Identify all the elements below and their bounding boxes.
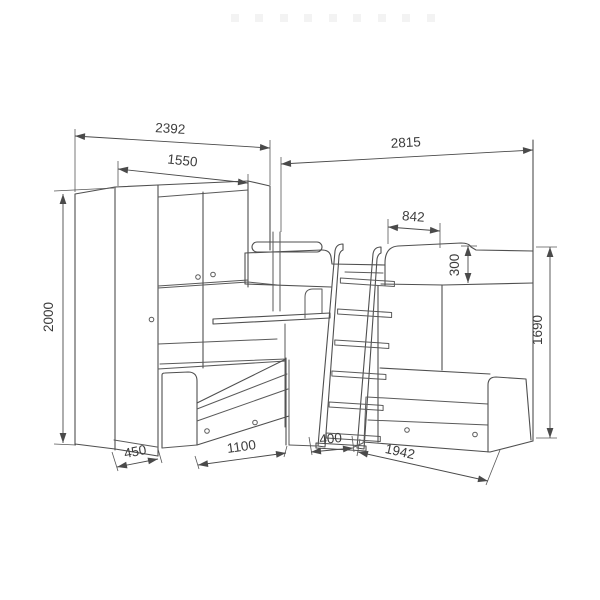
right-bed-drawer-handle-1 — [405, 428, 410, 433]
dimension-labels: 2392 1550 2815 842 300 2000 1690 450 110… — [41, 120, 545, 462]
left-bed-drawer-handle-1 — [205, 429, 210, 434]
ladder — [316, 244, 394, 451]
dimension-lines — [63, 136, 550, 481]
dim-label-wardrobe-depth: 450 — [123, 442, 148, 461]
dim-label-upper-bed-height: 1690 — [530, 315, 545, 345]
watermark-dots — [231, 14, 435, 22]
wardrobe — [75, 185, 158, 456]
overhead-cabinet — [158, 181, 286, 369]
wardrobe-door-handle — [149, 317, 154, 322]
dim-line-2815 — [281, 150, 533, 164]
right-bed-with-drawers — [354, 286, 533, 452]
dim-line-1942 — [358, 452, 488, 481]
dim-line-2392 — [75, 136, 270, 148]
dim-line-450 — [117, 459, 158, 467]
dim-label-upper-cabinet-section: 1550 — [167, 151, 198, 169]
left-bed-with-drawers — [162, 358, 317, 448]
dim-line-1550 — [118, 169, 248, 183]
right-bed-drawer-handle-2 — [473, 432, 478, 437]
dim-label-left-wall-total: 2392 — [155, 120, 186, 137]
cabinet-door-handle-right — [211, 272, 216, 277]
dim-label-left-bed-front-length: 1100 — [226, 437, 257, 456]
furniture-dimension-drawing: 2392 1550 2815 842 300 2000 1690 450 110… — [0, 0, 600, 600]
cabinet-door-handle-left — [196, 275, 201, 280]
dim-label-wardrobe-height: 2000 — [41, 302, 56, 332]
upper-bunk-bed — [245, 140, 533, 441]
furniture-dimension-drawing-page: 2392 1550 2815 842 300 2000 1690 450 110… — [0, 0, 600, 600]
dim-label-ladder-base-width: 400 — [319, 430, 343, 447]
dim-line-842 — [388, 227, 440, 231]
dim-line-1100 — [198, 453, 286, 465]
dim-label-right-wall-total: 2815 — [390, 134, 421, 151]
desk-shelf — [213, 289, 330, 427]
left-bed-drawer-handle-2 — [253, 420, 258, 425]
dim-label-upper-bed-rail-height: 300 — [447, 254, 462, 277]
dim-label-upper-bed-head-section: 842 — [402, 208, 426, 225]
